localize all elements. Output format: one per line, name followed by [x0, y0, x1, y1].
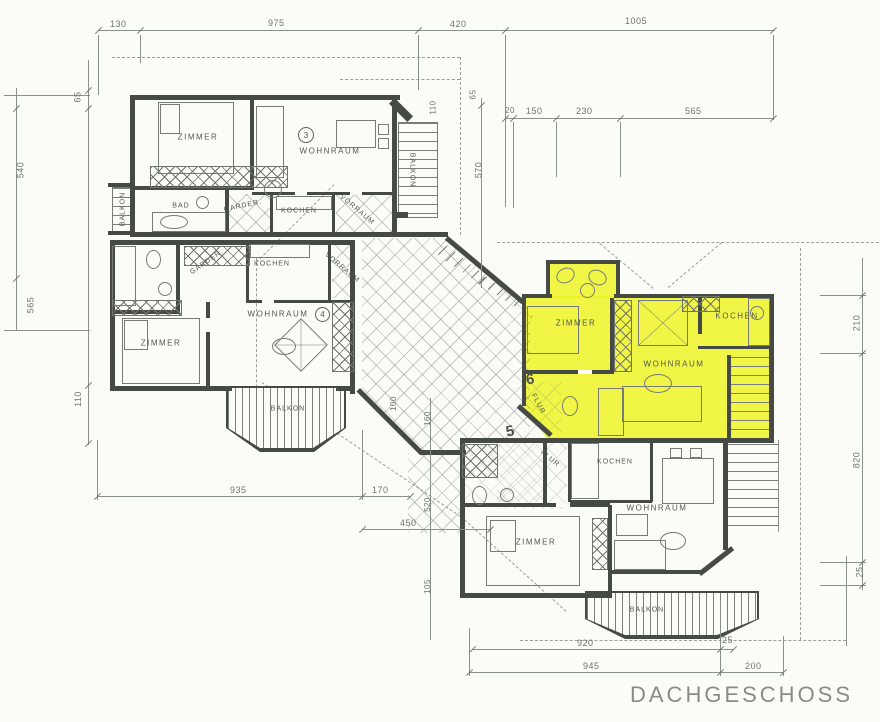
toilet — [562, 396, 578, 416]
door-opening — [262, 300, 274, 303]
sofa — [614, 540, 666, 570]
bathtub — [112, 246, 136, 306]
shower-hatch — [462, 444, 498, 478]
dimension-line — [98, 30, 775, 31]
room-label-zimmer: ZIMMER — [556, 319, 597, 328]
lamp-symbol — [660, 532, 686, 550]
dim-label: 100 — [389, 396, 398, 411]
wall — [270, 194, 273, 234]
balkon3-right-railing — [398, 122, 438, 218]
dim-label: 150 — [526, 106, 543, 116]
table — [336, 120, 376, 148]
sink — [196, 196, 209, 209]
wardrobe-hatch — [614, 300, 632, 372]
dim-label: 160 — [423, 411, 432, 426]
extension-line — [720, 600, 721, 676]
extension-line — [505, 35, 506, 207]
extension-line — [820, 562, 866, 563]
dim-label: 935 — [230, 485, 247, 495]
dim-label: 130 — [110, 19, 127, 29]
dim-label: 520 — [423, 497, 432, 512]
table — [616, 514, 648, 536]
room-label-kochen: KOCHEN — [281, 208, 317, 215]
dim-label: 945 — [583, 661, 600, 671]
wall — [608, 505, 612, 597]
wall — [460, 593, 612, 598]
dim-label: 540 — [15, 162, 25, 179]
wall — [206, 302, 210, 388]
dimension-line — [16, 88, 17, 330]
wall — [522, 294, 526, 406]
room-label-kochen: KOCHEN — [715, 312, 758, 321]
pillow — [160, 104, 180, 134]
dim-label: 170 — [372, 485, 389, 495]
extension-line — [98, 35, 99, 95]
room-label-kochen: KOCHEN — [254, 261, 290, 268]
wall — [110, 386, 232, 391]
door-opening — [578, 370, 592, 374]
chair — [378, 124, 389, 135]
pillow — [490, 520, 516, 552]
sofa — [256, 106, 284, 178]
cupboard-hatch — [332, 302, 354, 372]
dim-label: 20 — [505, 106, 515, 115]
extension-line — [773, 35, 774, 120]
sink — [580, 283, 595, 298]
wall — [698, 546, 734, 576]
dim-label: 920 — [577, 638, 594, 648]
sink — [500, 488, 514, 502]
dimension-line — [430, 398, 431, 640]
wall — [460, 438, 552, 443]
extension-line — [513, 122, 514, 208]
unit-number-badge: 3 — [298, 127, 314, 143]
room-label-kochen: KOCHEN — [597, 459, 633, 466]
dimension-line — [469, 672, 783, 673]
roof-dashed-line — [800, 248, 801, 640]
roof-dashed-line — [112, 57, 460, 58]
dim-tick — [770, 27, 777, 34]
dim-label: 820 — [851, 452, 861, 469]
room-label-wohnraum: WOHNRAUM — [644, 360, 705, 369]
kitchen-counter — [748, 298, 770, 346]
room-label-balkon: BALKON — [409, 153, 416, 187]
room-label-zimmer: ZIMMER — [141, 339, 182, 348]
wall — [130, 232, 448, 237]
sink — [158, 282, 172, 296]
wall — [110, 240, 354, 245]
roof-dashed-line — [340, 79, 460, 80]
room-label-wohnraum: WOHNRAUM — [300, 147, 361, 156]
room-label-wohnraum: WOHNRAUM — [248, 310, 309, 319]
roof-dashed-line — [668, 242, 722, 288]
cupboard-hatch — [592, 518, 608, 570]
extension-line — [846, 556, 847, 646]
exterior-stair-treads — [727, 444, 778, 532]
extension-line — [4, 330, 90, 331]
wall — [130, 95, 400, 100]
bathtub — [598, 388, 624, 436]
extension-line — [820, 585, 866, 586]
exterior-stair-edge — [778, 440, 779, 532]
dimension-line — [862, 258, 863, 590]
wall — [522, 370, 614, 374]
dim-label: 25 — [855, 566, 865, 577]
dim-label: 230 — [576, 106, 593, 116]
roof-dashed-line — [497, 242, 879, 243]
room-label-zimmer: ZIMMER — [516, 538, 557, 547]
door-opening — [350, 192, 362, 195]
floor-plan: ZIMMER WOHNRAUM 3 BAD GARDER. KOCHEN VOR… — [0, 0, 880, 722]
dimension-line — [472, 649, 733, 650]
bed — [527, 306, 579, 354]
lamp-symbol — [644, 374, 672, 393]
room-label-zimmer: ZIMMER — [178, 133, 219, 142]
room-label-wohnraum: WOHNRAUM — [627, 504, 688, 513]
wall — [698, 346, 770, 349]
dimension-line — [481, 98, 482, 288]
wall — [610, 570, 702, 574]
room-label-balkon: BALKON — [271, 406, 305, 413]
dimension-line — [362, 529, 490, 530]
dim-label: 1005 — [625, 16, 647, 26]
extension-line — [556, 122, 557, 177]
chair — [670, 448, 682, 458]
extension-line — [820, 295, 866, 296]
dimension-line — [505, 118, 773, 119]
wall — [723, 440, 728, 550]
drawing-title: DACHGESCHOSS — [630, 682, 853, 708]
dim-label: 105 — [423, 579, 432, 594]
toilet — [472, 486, 487, 505]
wall — [328, 242, 331, 302]
dim-label: 25 — [722, 635, 733, 645]
door-opening — [295, 192, 307, 195]
chair — [378, 138, 389, 149]
wall — [332, 194, 335, 234]
dim-label: 200 — [745, 661, 762, 671]
extension-line — [97, 440, 98, 500]
room-label-balkon: BALKON — [630, 607, 664, 614]
dim-tick — [770, 115, 777, 122]
dim-label: 210 — [851, 315, 861, 332]
wall — [336, 386, 354, 391]
wall — [392, 212, 408, 218]
table — [638, 300, 688, 346]
wall — [616, 260, 620, 298]
room-label-bad: BAD — [172, 203, 189, 210]
roof-dashed-line — [520, 640, 846, 641]
garderobe3-tiles — [228, 194, 270, 232]
dim-label: 110 — [73, 391, 83, 407]
extension-line — [362, 430, 363, 500]
stair6-treads — [729, 357, 770, 435]
wall — [548, 260, 620, 264]
kitchen-counter — [571, 443, 599, 499]
dim-label: 65 — [468, 90, 477, 100]
extension-line — [820, 353, 866, 354]
extension-line — [418, 35, 419, 90]
kitchen-counter — [250, 244, 310, 258]
dim-tick — [85, 440, 92, 447]
dim-label: 570 — [473, 162, 483, 179]
toilet — [146, 250, 161, 269]
table — [662, 458, 714, 504]
dim-label: 975 — [268, 18, 285, 28]
room-label-balkon: BALKON — [120, 192, 127, 226]
roof-dashed-line — [460, 57, 461, 235]
extension-line — [620, 122, 621, 177]
dim-label: 565 — [25, 297, 35, 314]
wall — [650, 440, 653, 502]
wall — [546, 260, 550, 298]
dim-label: 65 — [73, 91, 83, 102]
lamp-symbol — [272, 338, 296, 355]
dim-label: 110 — [429, 100, 438, 114]
wall — [108, 231, 132, 235]
chair — [690, 448, 702, 458]
wall — [522, 294, 552, 298]
wall — [727, 355, 731, 439]
dim-label: 565 — [685, 106, 702, 116]
basin — [160, 215, 188, 229]
door-opening — [556, 503, 570, 507]
wall — [108, 183, 132, 187]
wall — [130, 95, 135, 237]
dim-label: 450 — [400, 518, 417, 528]
dim-tick — [730, 646, 737, 653]
extension-line — [140, 35, 141, 63]
dim-label: 420 — [450, 19, 467, 29]
dimension-line — [88, 60, 89, 445]
door-opening — [206, 318, 210, 332]
unit-number-badge: 4 — [315, 307, 330, 322]
